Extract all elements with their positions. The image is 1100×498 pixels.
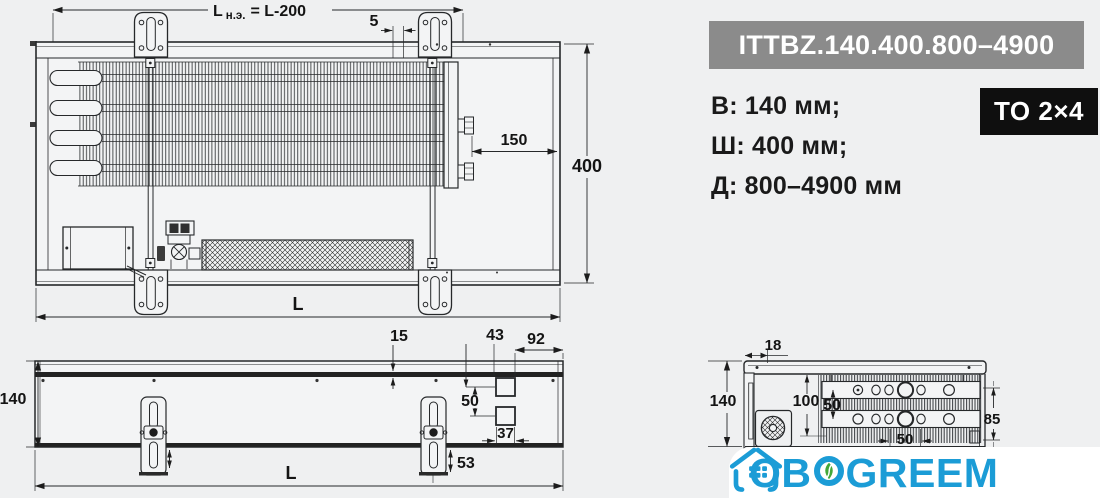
dim-label-50: 50 [461, 393, 479, 410]
mounting-bracket [419, 13, 452, 58]
mounting-bracket [135, 270, 168, 315]
pipe-knockout [496, 407, 515, 425]
dim-label-37: 37 [497, 425, 514, 442]
top-view: Lн.э.= L-200 5 150 400 L [30, 3, 602, 322]
control-box [63, 227, 146, 277]
mounting-bracket [135, 13, 168, 58]
top-panel [744, 361, 986, 374]
pipe-knockout [496, 378, 515, 396]
tangential-fan [202, 240, 413, 270]
brand-logo: OBGREEM [749, 453, 998, 494]
model-title: ITTBZ.140.400.800–4900 [739, 30, 1055, 61]
spec-height: В: 140 мм; [711, 86, 902, 126]
dim-label-50-bottom: 50 [897, 431, 914, 448]
spec-width: Ш: 400 мм; [711, 126, 902, 166]
fan [756, 411, 792, 447]
dim-label-85: 85 [984, 411, 1001, 428]
adjustable-foot-bracket [419, 397, 448, 476]
leaf-icon [820, 462, 838, 480]
dim-label-length: L [293, 294, 304, 314]
product-card: Lн.э.= L-200 5 150 400 L [0, 0, 1100, 498]
brand-text-after: GREEM [846, 453, 999, 494]
collector [444, 62, 458, 188]
dim-label-100: 100 [793, 393, 820, 410]
spec-length: Д: 800–4900 мм [711, 166, 902, 206]
leaf-o-mark [814, 456, 844, 486]
mounting-bracket [419, 270, 452, 315]
dim-label-height: 140 [0, 391, 26, 408]
technical-drawing: Lн.э.= L-200 5 150 400 L [0, 0, 1100, 498]
heat-exchanger-fins [78, 62, 445, 186]
dim-label-43: 43 [486, 327, 504, 344]
pipe-fitting [458, 117, 474, 134]
dim-label-15: 15 [390, 328, 408, 345]
house-icon [729, 447, 783, 494]
dim-label-offset: 5 [370, 13, 379, 30]
model-title-bar: ITTBZ.140.400.800–4900 [709, 21, 1084, 69]
dim-label-92: 92 [527, 331, 545, 348]
dim-label-53: 53 [457, 455, 475, 472]
dim-label-50: 50 [823, 397, 841, 414]
dim-label-150: 150 [501, 132, 528, 149]
badge-label: TO 2×4 [994, 96, 1084, 127]
pipe-fitting [458, 163, 474, 180]
dim-label-400: 400 [572, 156, 602, 176]
grille-band [35, 372, 563, 377]
heat-exchanger-badge: TO 2×4 [980, 88, 1098, 135]
front-view: 140 15 43 92 50 37 53 L [0, 327, 563, 491]
dim-label-length: L [286, 463, 297, 483]
section-view: 18 140 100 50 85 50 [708, 337, 1000, 448]
spec-list: В: 140 мм; Ш: 400 мм; Д: 800–4900 мм [711, 86, 902, 206]
adjustable-foot-bracket [139, 397, 168, 476]
dim-label-height: 140 [710, 393, 737, 410]
dim-label-element-length: Lн.э.= L-200 [213, 3, 306, 22]
brand-watermark: OBGREEM [729, 447, 1100, 498]
dim-label-18: 18 [765, 337, 782, 354]
